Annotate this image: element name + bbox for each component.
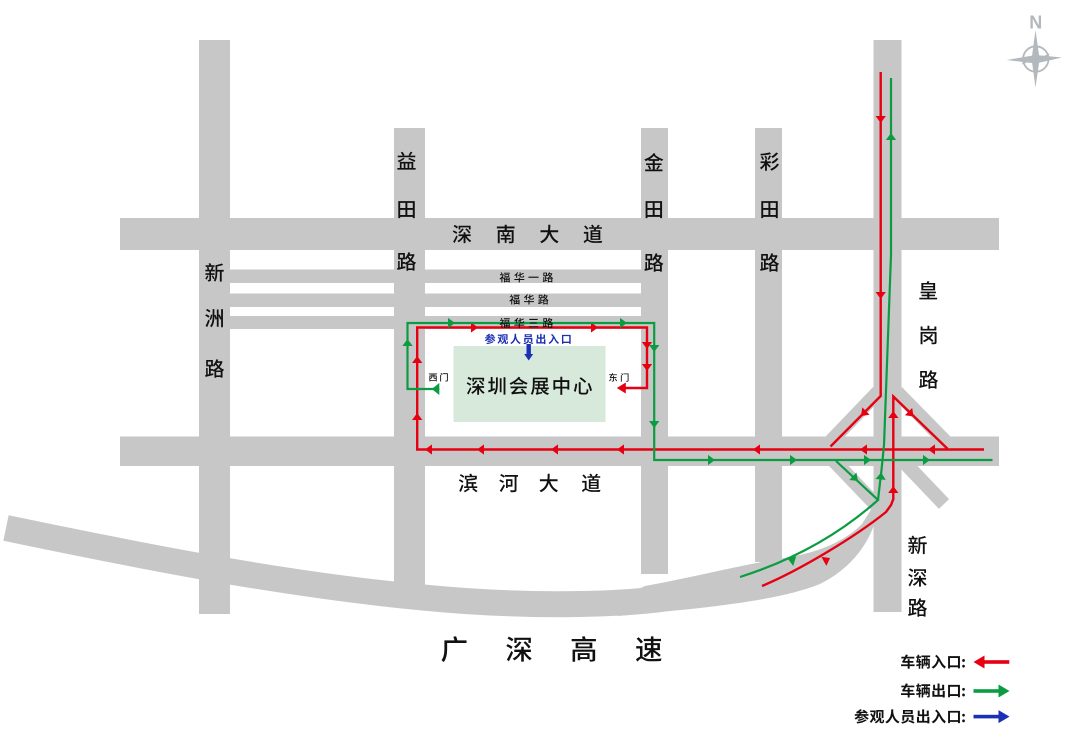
svg-text:N: N <box>1029 13 1042 33</box>
